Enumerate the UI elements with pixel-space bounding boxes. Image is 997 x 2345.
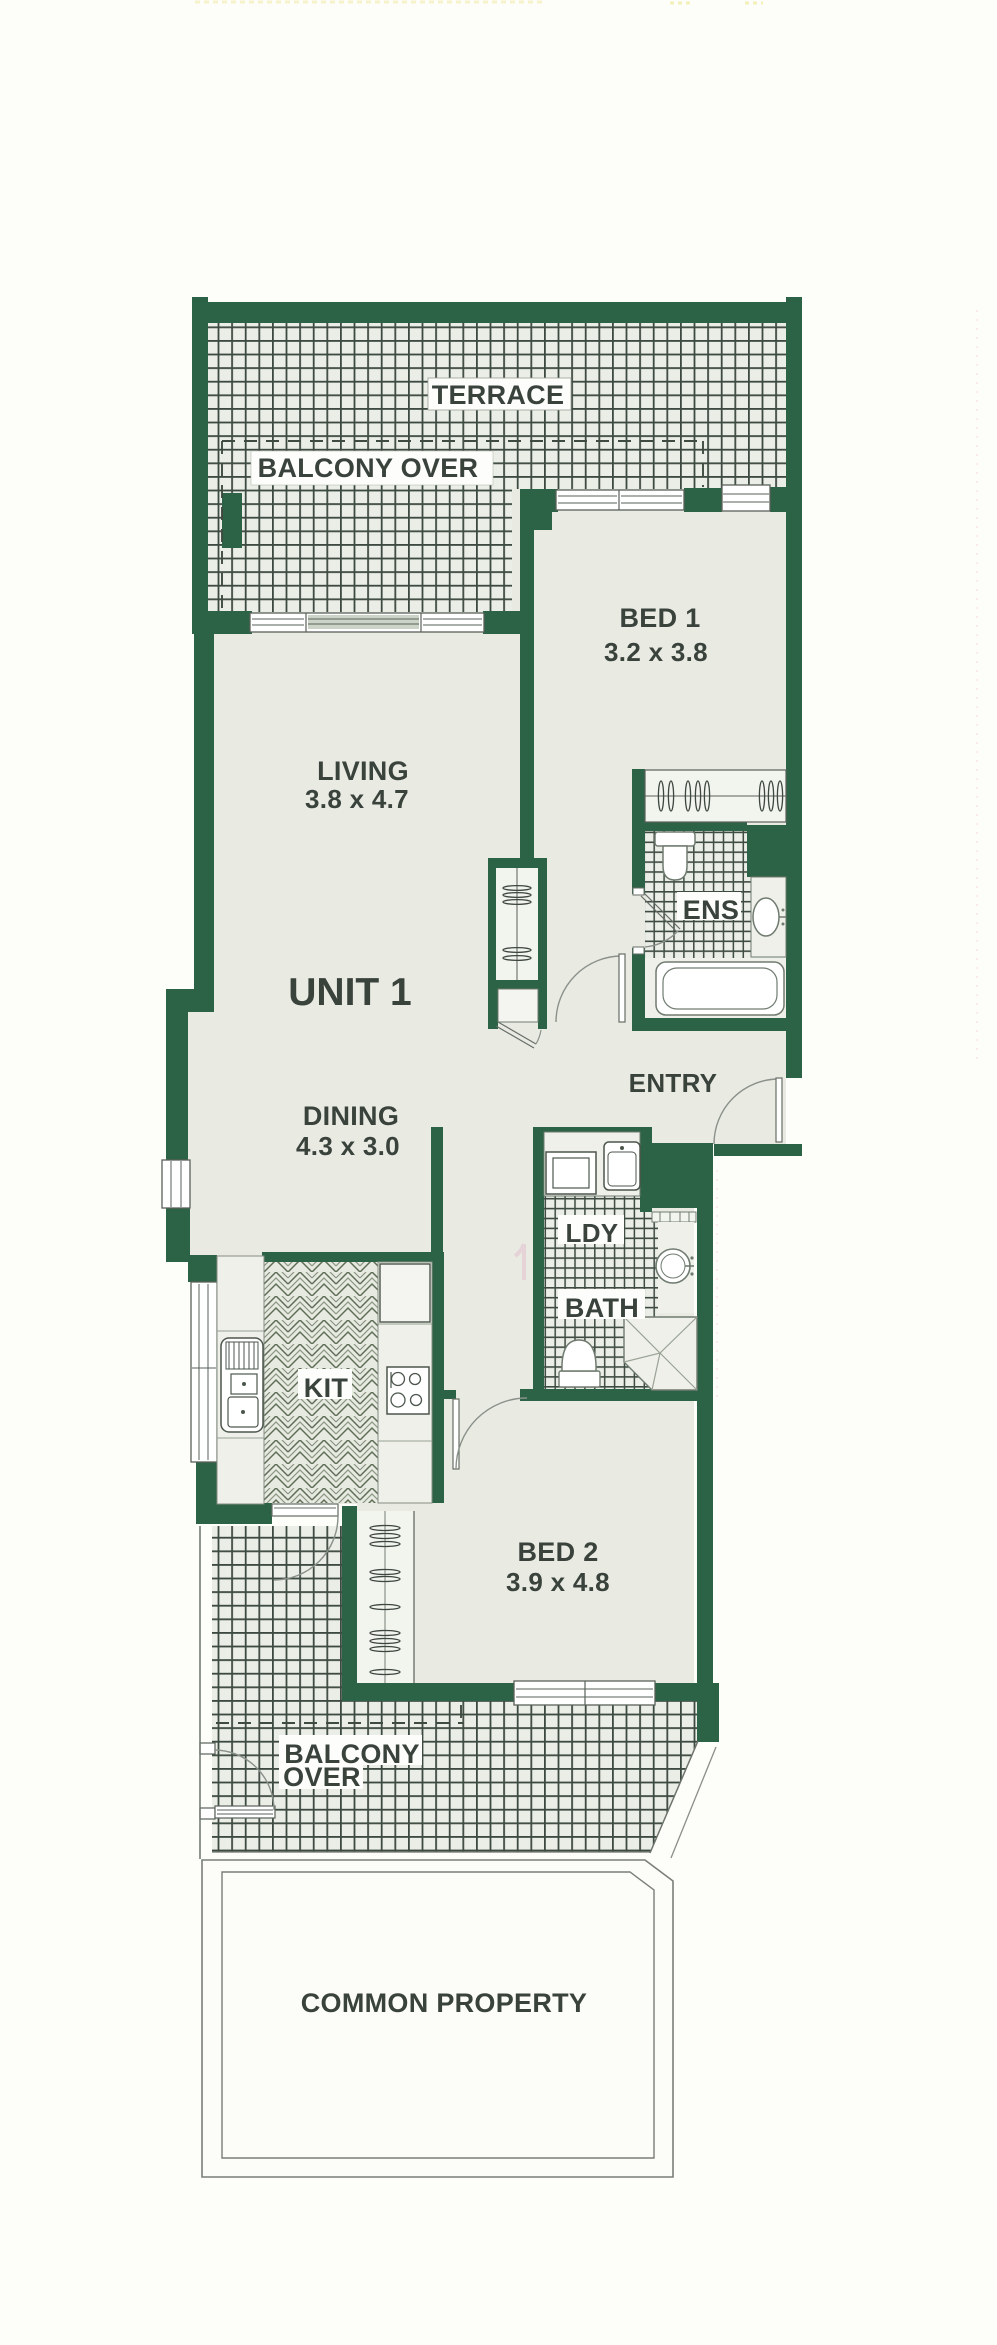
svg-text:KIT: KIT — [304, 1373, 349, 1403]
svg-text:3.8 x 4.7: 3.8 x 4.7 — [305, 784, 409, 814]
svg-text:BALCONY OVER: BALCONY OVER — [258, 453, 479, 483]
svg-text:COMMON PROPERTY: COMMON PROPERTY — [301, 1988, 588, 2018]
svg-text:DINING: DINING — [303, 1101, 399, 1131]
svg-text:UNIT 1: UNIT 1 — [288, 971, 412, 1014]
svg-text:ENTRY: ENTRY — [629, 1068, 718, 1098]
svg-text:ENS: ENS — [683, 895, 739, 925]
svg-text:BATH: BATH — [565, 1293, 639, 1323]
svg-text:4.3 x 3.0: 4.3 x 3.0 — [296, 1131, 400, 1161]
svg-text:BED 1: BED 1 — [619, 603, 700, 633]
svg-text:LIVING: LIVING — [317, 756, 409, 786]
svg-text:LDY: LDY — [566, 1218, 619, 1248]
svg-text:OVER: OVER — [283, 1762, 361, 1792]
svg-text:3.9 x 4.8: 3.9 x 4.8 — [506, 1567, 610, 1597]
svg-text:BED 2: BED 2 — [517, 1537, 598, 1567]
svg-text:3.2 x 3.8: 3.2 x 3.8 — [604, 637, 708, 667]
svg-text:TERRACE: TERRACE — [432, 380, 565, 410]
